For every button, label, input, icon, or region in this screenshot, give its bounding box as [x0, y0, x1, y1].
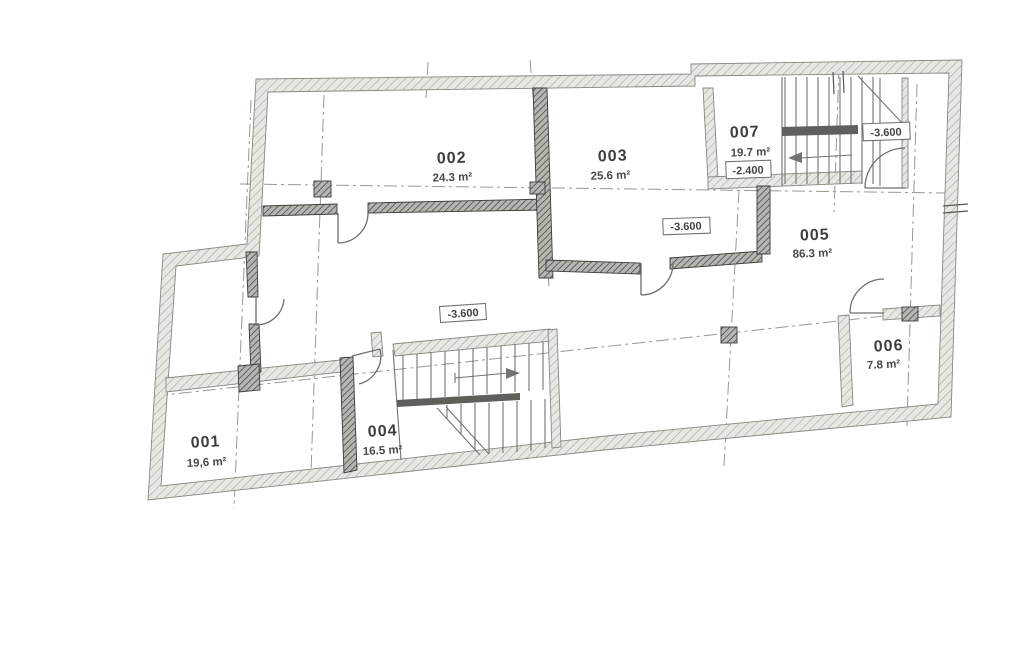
room-003-area: 25.6 m² [590, 169, 630, 182]
stair-center-break-line-2 [446, 407, 489, 454]
axis-line-vertical-5 [834, 66, 839, 212]
room-007-number: 007 [730, 124, 760, 142]
elevation-label-room-003: -3.600 [663, 217, 711, 235]
axis-line-horizontal-upper [240, 184, 948, 193]
room-005-number: 005 [800, 226, 830, 244]
door-stair-landing [865, 148, 905, 188]
door-room003 [641, 263, 673, 295]
room-007-area: 19.7 m² [730, 146, 770, 159]
elevation-value-room-007: -2.400 [732, 164, 764, 177]
room-003-number: 003 [598, 147, 628, 165]
door-room006 [850, 279, 884, 313]
elevation-value-top-right-stair: -3.600 [870, 126, 902, 139]
room-label-004: 004 16.5 m² [361, 422, 403, 458]
wall-room003-right [757, 186, 770, 254]
room-005-area: 86.3 m² [792, 247, 832, 260]
room-label-007: 007 19.7 m² [730, 123, 771, 159]
wall-room003-bottom-left [546, 260, 640, 274]
stair-topright-direction-arrow [788, 152, 852, 163]
elevation-value-center-stair: -3.600 [447, 307, 479, 321]
wall-room006-left [838, 315, 853, 407]
wall-alcove-corner [238, 364, 260, 392]
wall-centerstair-rightstub [548, 329, 561, 448]
room-label-002: 002 24.3 m² [432, 149, 473, 184]
column-marker-3 [721, 327, 737, 343]
room-002-area: 24.3 m² [432, 171, 472, 184]
column-marker-4 [902, 307, 918, 321]
elevation-label-center-stair: -3.600 [439, 303, 486, 322]
room-001-area: 19,6 m² [187, 456, 227, 470]
room-label-005: 005 86.3 m² [792, 226, 833, 260]
room-label-001: 001 19,6 m² [185, 433, 227, 470]
wall-room002-bottom-left [263, 204, 337, 216]
stair-topright-handrail [782, 125, 858, 136]
wall-room002-bottom-right [368, 199, 546, 213]
floor-plan-drawing: 001 19,6 m² 002 24.3 m² 003 25.6 m² 004 … [0, 0, 1024, 672]
column-marker-1 [314, 181, 331, 197]
room-006-area: 7.8 m² [867, 358, 901, 372]
room-label-006: 006 7.8 m² [866, 337, 905, 372]
room-004-number: 004 [367, 422, 398, 441]
stair-center [393, 342, 545, 460]
wall-room003-bottom-right [670, 251, 762, 269]
door-alcove [256, 297, 284, 325]
axis-line-vertical-2 [311, 95, 324, 473]
stair-center-break-line-1 [437, 408, 480, 455]
axis-line-vertical-1 [234, 100, 251, 508]
elevation-value-room-003: -3.600 [670, 220, 702, 233]
room-006-number: 006 [873, 337, 904, 356]
room-001-number: 001 [190, 433, 221, 452]
room-004-area: 16.5 m² [363, 444, 403, 458]
room-002-number: 002 [437, 149, 467, 167]
column-marker-2 [530, 182, 545, 194]
wall-alcove-upper [246, 252, 258, 297]
wall-room007-left [703, 88, 718, 181]
elevation-label-room-007: -2.400 [726, 160, 772, 179]
door-room002 [338, 213, 368, 243]
room-label-003: 003 25.6 m² [590, 147, 631, 182]
elevation-label-top-right-stair: -3.600 [863, 122, 911, 141]
